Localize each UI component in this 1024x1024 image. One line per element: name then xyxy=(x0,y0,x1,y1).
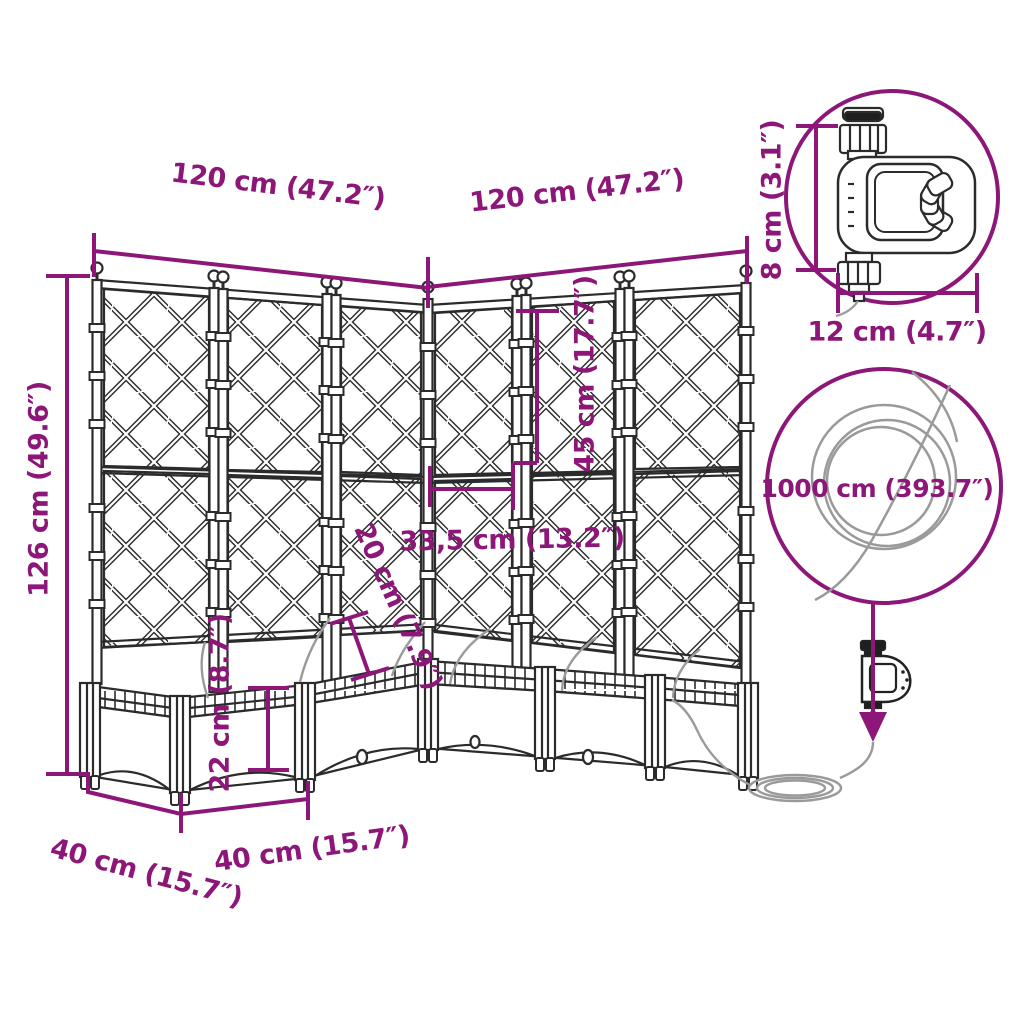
label-timer-height: 8 cm (3.1″) xyxy=(757,120,788,281)
diagram-canvas: 120 cm (47.2″) 120 cm (47.2″) 126 cm (49… xyxy=(0,0,1024,1024)
label-upper-trellis-height: 45 cm (17.7″) xyxy=(570,275,601,472)
label-timer-width: 12 cm (4.7″) xyxy=(807,317,986,348)
label-hose-length: 1000 cm (393.7″) xyxy=(761,474,994,503)
label-overall-height: 126 cm (49.6″) xyxy=(24,381,55,597)
label-planter-box-height: 22 cm (8.7″) xyxy=(205,613,236,792)
dimension-diagram: 120 cm (47.2″) 120 cm (47.2″) 126 cm (49… xyxy=(0,0,1024,1024)
label-corner-section-width: 33,5 cm (13.2″) xyxy=(399,523,625,558)
